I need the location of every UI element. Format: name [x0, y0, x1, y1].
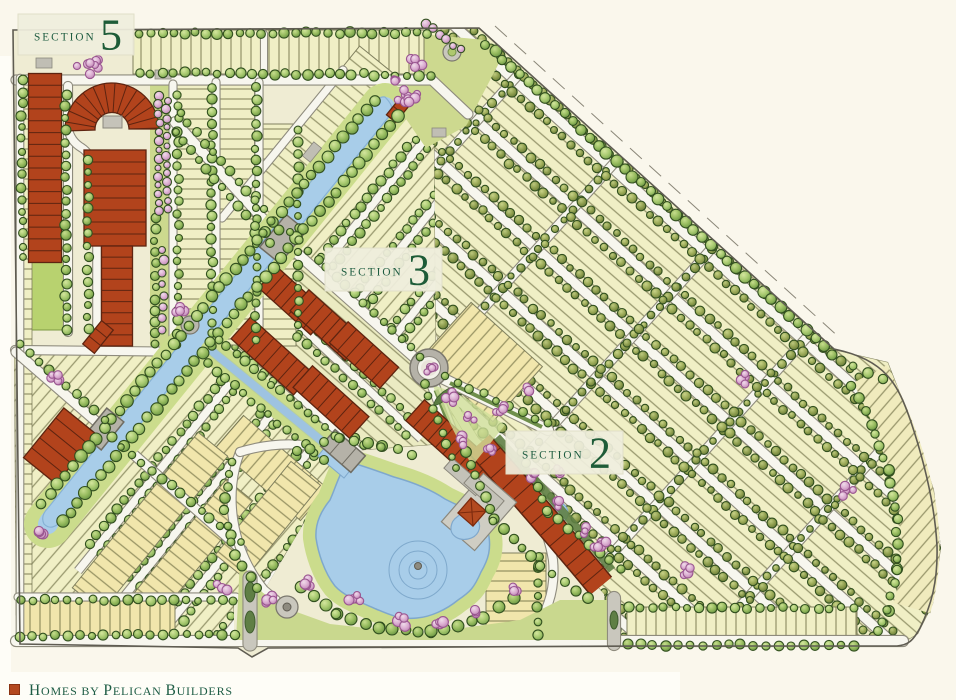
svg-text:HOMES BY PELICAN BUILDERS: HOMES BY PELICAN BUILDERS — [29, 682, 233, 699]
svg-text:5: 5 — [100, 11, 122, 60]
svg-text:SECTION: SECTION — [34, 32, 96, 44]
svg-text:2: 2 — [589, 429, 611, 478]
svg-text:3: 3 — [408, 246, 430, 295]
svg-text:SECTION: SECTION — [341, 267, 403, 279]
svg-text:SECTION: SECTION — [522, 450, 584, 462]
